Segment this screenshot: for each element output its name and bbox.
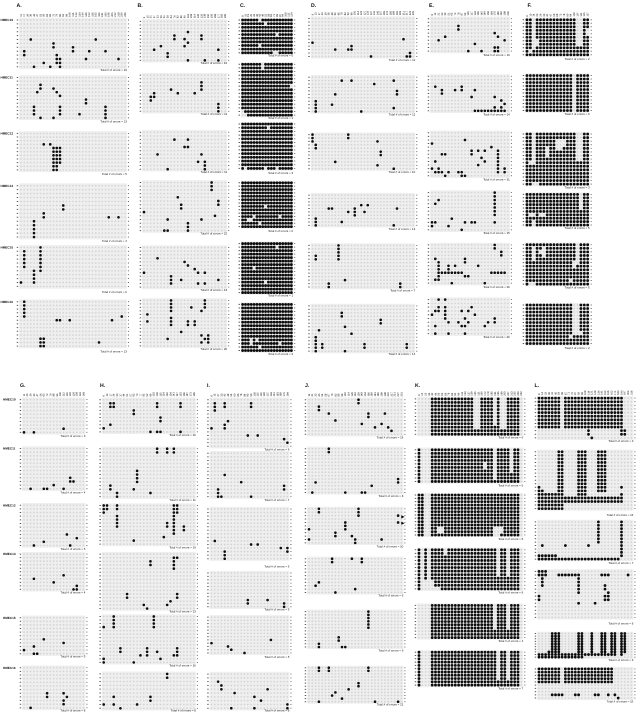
svg-text:Total # of errors = 13: Total # of errors = 13 xyxy=(100,119,127,123)
svg-text:HMEC16: HMEC16 xyxy=(3,666,16,670)
svg-text:Total # of errors = 3: Total # of errors = 3 xyxy=(268,171,293,175)
svg-text:127: 127 xyxy=(587,12,590,17)
svg-text:231: 231 xyxy=(400,392,403,397)
svg-text:G.: G. xyxy=(20,383,26,389)
svg-text:Total # of errors = 13: Total # of errors = 13 xyxy=(389,227,416,231)
svg-text:Total # of errors = 3: Total # of errors = 3 xyxy=(565,186,590,190)
svg-text:Total # of errors = 5: Total # of errors = 5 xyxy=(498,537,523,541)
svg-text:F.: F. xyxy=(528,3,533,9)
svg-text:Total # of errors = 11: Total # of errors = 11 xyxy=(201,170,228,174)
svg-text:Total # of errors = 12: Total # of errors = 12 xyxy=(377,702,404,706)
svg-text:184: 184 xyxy=(286,392,289,397)
svg-text:C.: C. xyxy=(240,3,246,9)
svg-text:Total # of errors = 19: Total # of errors = 19 xyxy=(169,545,196,549)
svg-text:Total # of errors = 13: Total # of errors = 13 xyxy=(201,288,228,292)
svg-text:Total # of errors = 26: Total # of errors = 26 xyxy=(483,285,510,289)
svg-text:Total # of errors = 8: Total # of errors = 8 xyxy=(264,708,289,712)
svg-text:Total # of errors = 19: Total # of errors = 19 xyxy=(100,68,127,72)
svg-text:Total # of errors = 5: Total # of errors = 5 xyxy=(102,172,127,176)
svg-text:Total # of errors = 6: Total # of errors = 6 xyxy=(498,435,523,439)
svg-text:Total # of errors = 6: Total # of errors = 6 xyxy=(498,484,523,488)
svg-text:HMEC19: HMEC19 xyxy=(1,18,14,22)
svg-text:A.: A. xyxy=(17,3,23,9)
svg-text:Total # of errors = 2: Total # of errors = 2 xyxy=(565,57,590,61)
svg-text:185: 185 xyxy=(193,392,196,397)
svg-text:J.: J. xyxy=(305,383,310,389)
svg-text:Total # of errors = 14: Total # of errors = 14 xyxy=(389,352,416,356)
svg-text:Total # of errors = 10: Total # of errors = 10 xyxy=(483,53,510,57)
svg-text:Total # of errors = 15: Total # of errors = 15 xyxy=(607,699,634,703)
svg-text:Total # of errors = 10: Total # of errors = 10 xyxy=(377,544,404,548)
svg-text:Total # of errors = 13: Total # of errors = 13 xyxy=(100,349,127,353)
svg-text:Total # of errors = 13: Total # of errors = 13 xyxy=(607,513,634,517)
svg-text:Total # of errors = 22: Total # of errors = 22 xyxy=(201,232,228,236)
svg-text:K.: K. xyxy=(415,383,421,389)
svg-text:233: 233 xyxy=(520,391,523,396)
svg-text:Total # of errors = 6: Total # of errors = 6 xyxy=(268,229,293,233)
svg-text:Total # of errors = 4: Total # of errors = 4 xyxy=(102,239,127,243)
svg-text:Total # of errors = 7: Total # of errors = 7 xyxy=(390,289,415,293)
svg-text:Total # of errors = 7: Total # of errors = 7 xyxy=(498,687,523,691)
svg-text:HMEC19: HMEC19 xyxy=(3,398,16,402)
svg-text:Total # of errors = 3: Total # of errors = 3 xyxy=(608,439,633,443)
svg-text:235: 235 xyxy=(412,10,415,15)
svg-text:HMEC15: HMEC15 xyxy=(1,246,14,250)
svg-text:Total # of errors = 5: Total # of errors = 5 xyxy=(60,655,85,659)
svg-text:236: 236 xyxy=(124,12,127,17)
svg-text:Total # of errors = 6: Total # of errors = 6 xyxy=(565,112,590,116)
svg-text:216: 216 xyxy=(630,390,633,395)
svg-text:124: 124 xyxy=(290,12,293,17)
svg-text:Total # of errors = 26: Total # of errors = 26 xyxy=(483,335,510,339)
svg-text:189: 189 xyxy=(224,13,227,18)
svg-text:Total # of errors = 8: Total # of errors = 8 xyxy=(498,590,523,594)
svg-text:Total # of errors = 13: Total # of errors = 13 xyxy=(169,609,196,613)
svg-text:205: 205 xyxy=(507,11,510,16)
svg-text:B.: B. xyxy=(138,3,144,9)
svg-text:E.: E. xyxy=(429,3,434,9)
svg-text:HMEC14: HMEC14 xyxy=(1,184,14,188)
svg-text:Total # of errors = 4: Total # of errors = 4 xyxy=(498,639,523,643)
svg-text:Total # of errors = 9: Total # of errors = 9 xyxy=(264,447,289,451)
svg-text:H.: H. xyxy=(100,383,106,389)
svg-text:Total # of errors = 20: Total # of errors = 20 xyxy=(201,347,228,351)
svg-text:D.: D. xyxy=(311,3,317,9)
svg-text:Total # of errors = 4: Total # of errors = 4 xyxy=(60,491,85,495)
svg-text:Total # of errors = 9: Total # of errors = 9 xyxy=(378,648,403,652)
svg-text:Total # of errors = 7: Total # of errors = 7 xyxy=(264,498,289,502)
svg-text:HMEC12: HMEC12 xyxy=(3,503,16,507)
svg-text:HMEC11: HMEC11 xyxy=(1,76,14,80)
svg-text:HMEC12: HMEC12 xyxy=(1,132,14,136)
svg-text:Total # of errors = 2: Total # of errors = 2 xyxy=(268,352,293,356)
svg-text:Total # of errors = 2: Total # of errors = 2 xyxy=(565,346,590,350)
svg-text:Total # of errors = 4: Total # of errors = 4 xyxy=(60,590,85,594)
svg-text:Total # of errors = 5: Total # of errors = 5 xyxy=(264,655,289,659)
svg-text:Total # of errors = 11: Total # of errors = 11 xyxy=(389,113,416,117)
svg-text:Total # of errors = 6: Total # of errors = 6 xyxy=(378,593,403,597)
svg-text:L.: L. xyxy=(535,383,540,389)
svg-text:Total # of errors = 5: Total # of errors = 5 xyxy=(60,547,85,551)
svg-text:Total # of errors = 8: Total # of errors = 8 xyxy=(378,494,403,498)
svg-text:Total # of errors = 31: Total # of errors = 31 xyxy=(483,177,510,181)
svg-text:Total # of errors = 5: Total # of errors = 5 xyxy=(264,565,289,569)
svg-text:HMEC15: HMEC15 xyxy=(3,616,16,620)
svg-text:Total # of errors = 5: Total # of errors = 5 xyxy=(565,286,590,290)
svg-text:Total # of errors = 1: Total # of errors = 1 xyxy=(268,116,293,120)
svg-text:Total # of errors = 16: Total # of errors = 16 xyxy=(169,433,196,437)
svg-text:Total # of errors = 10: Total # of errors = 10 xyxy=(389,170,416,174)
svg-text:HMEC14: HMEC14 xyxy=(3,552,16,556)
svg-text:Total # of errors = 11: Total # of errors = 11 xyxy=(169,498,196,502)
svg-text:Total # of errors = 6: Total # of errors = 6 xyxy=(102,290,127,294)
svg-text:148: 148 xyxy=(82,392,85,397)
svg-text:Total # of errors = 8: Total # of errors = 8 xyxy=(171,709,196,713)
svg-text:Total # of errors = 8: Total # of errors = 8 xyxy=(608,621,633,625)
svg-text:Total # of errors = 5: Total # of errors = 5 xyxy=(565,226,590,230)
svg-text:Total # of errors = 1: Total # of errors = 1 xyxy=(268,294,293,298)
svg-text:Total # of errors = 11: Total # of errors = 11 xyxy=(389,58,416,62)
svg-text:HMEC16: HMEC16 xyxy=(1,300,14,304)
svg-text:Total # of errors = 16: Total # of errors = 16 xyxy=(169,664,196,668)
svg-text:Total # of errors = 11: Total # of errors = 11 xyxy=(201,112,228,116)
svg-text:Total # of errors = 3: Total # of errors = 3 xyxy=(60,434,85,438)
svg-text:Total # of errors = 7: Total # of errors = 7 xyxy=(608,561,633,565)
svg-text:Total # of errors = 5: Total # of errors = 5 xyxy=(264,608,289,612)
svg-text:Total # of errors = 14: Total # of errors = 14 xyxy=(483,112,510,116)
svg-text:Total # of errors = 8: Total # of errors = 8 xyxy=(60,709,85,713)
svg-text:Total # of errors = 13: Total # of errors = 13 xyxy=(377,436,404,440)
svg-text:Total # of errors = 16: Total # of errors = 16 xyxy=(201,61,228,65)
svg-text:HMEC11: HMEC11 xyxy=(3,447,16,451)
svg-text:Total # of errors = 9: Total # of errors = 9 xyxy=(608,658,633,662)
svg-text:Total # of errors = 15: Total # of errors = 15 xyxy=(483,231,510,235)
svg-text:Total # of errors = 6: Total # of errors = 6 xyxy=(268,53,293,57)
